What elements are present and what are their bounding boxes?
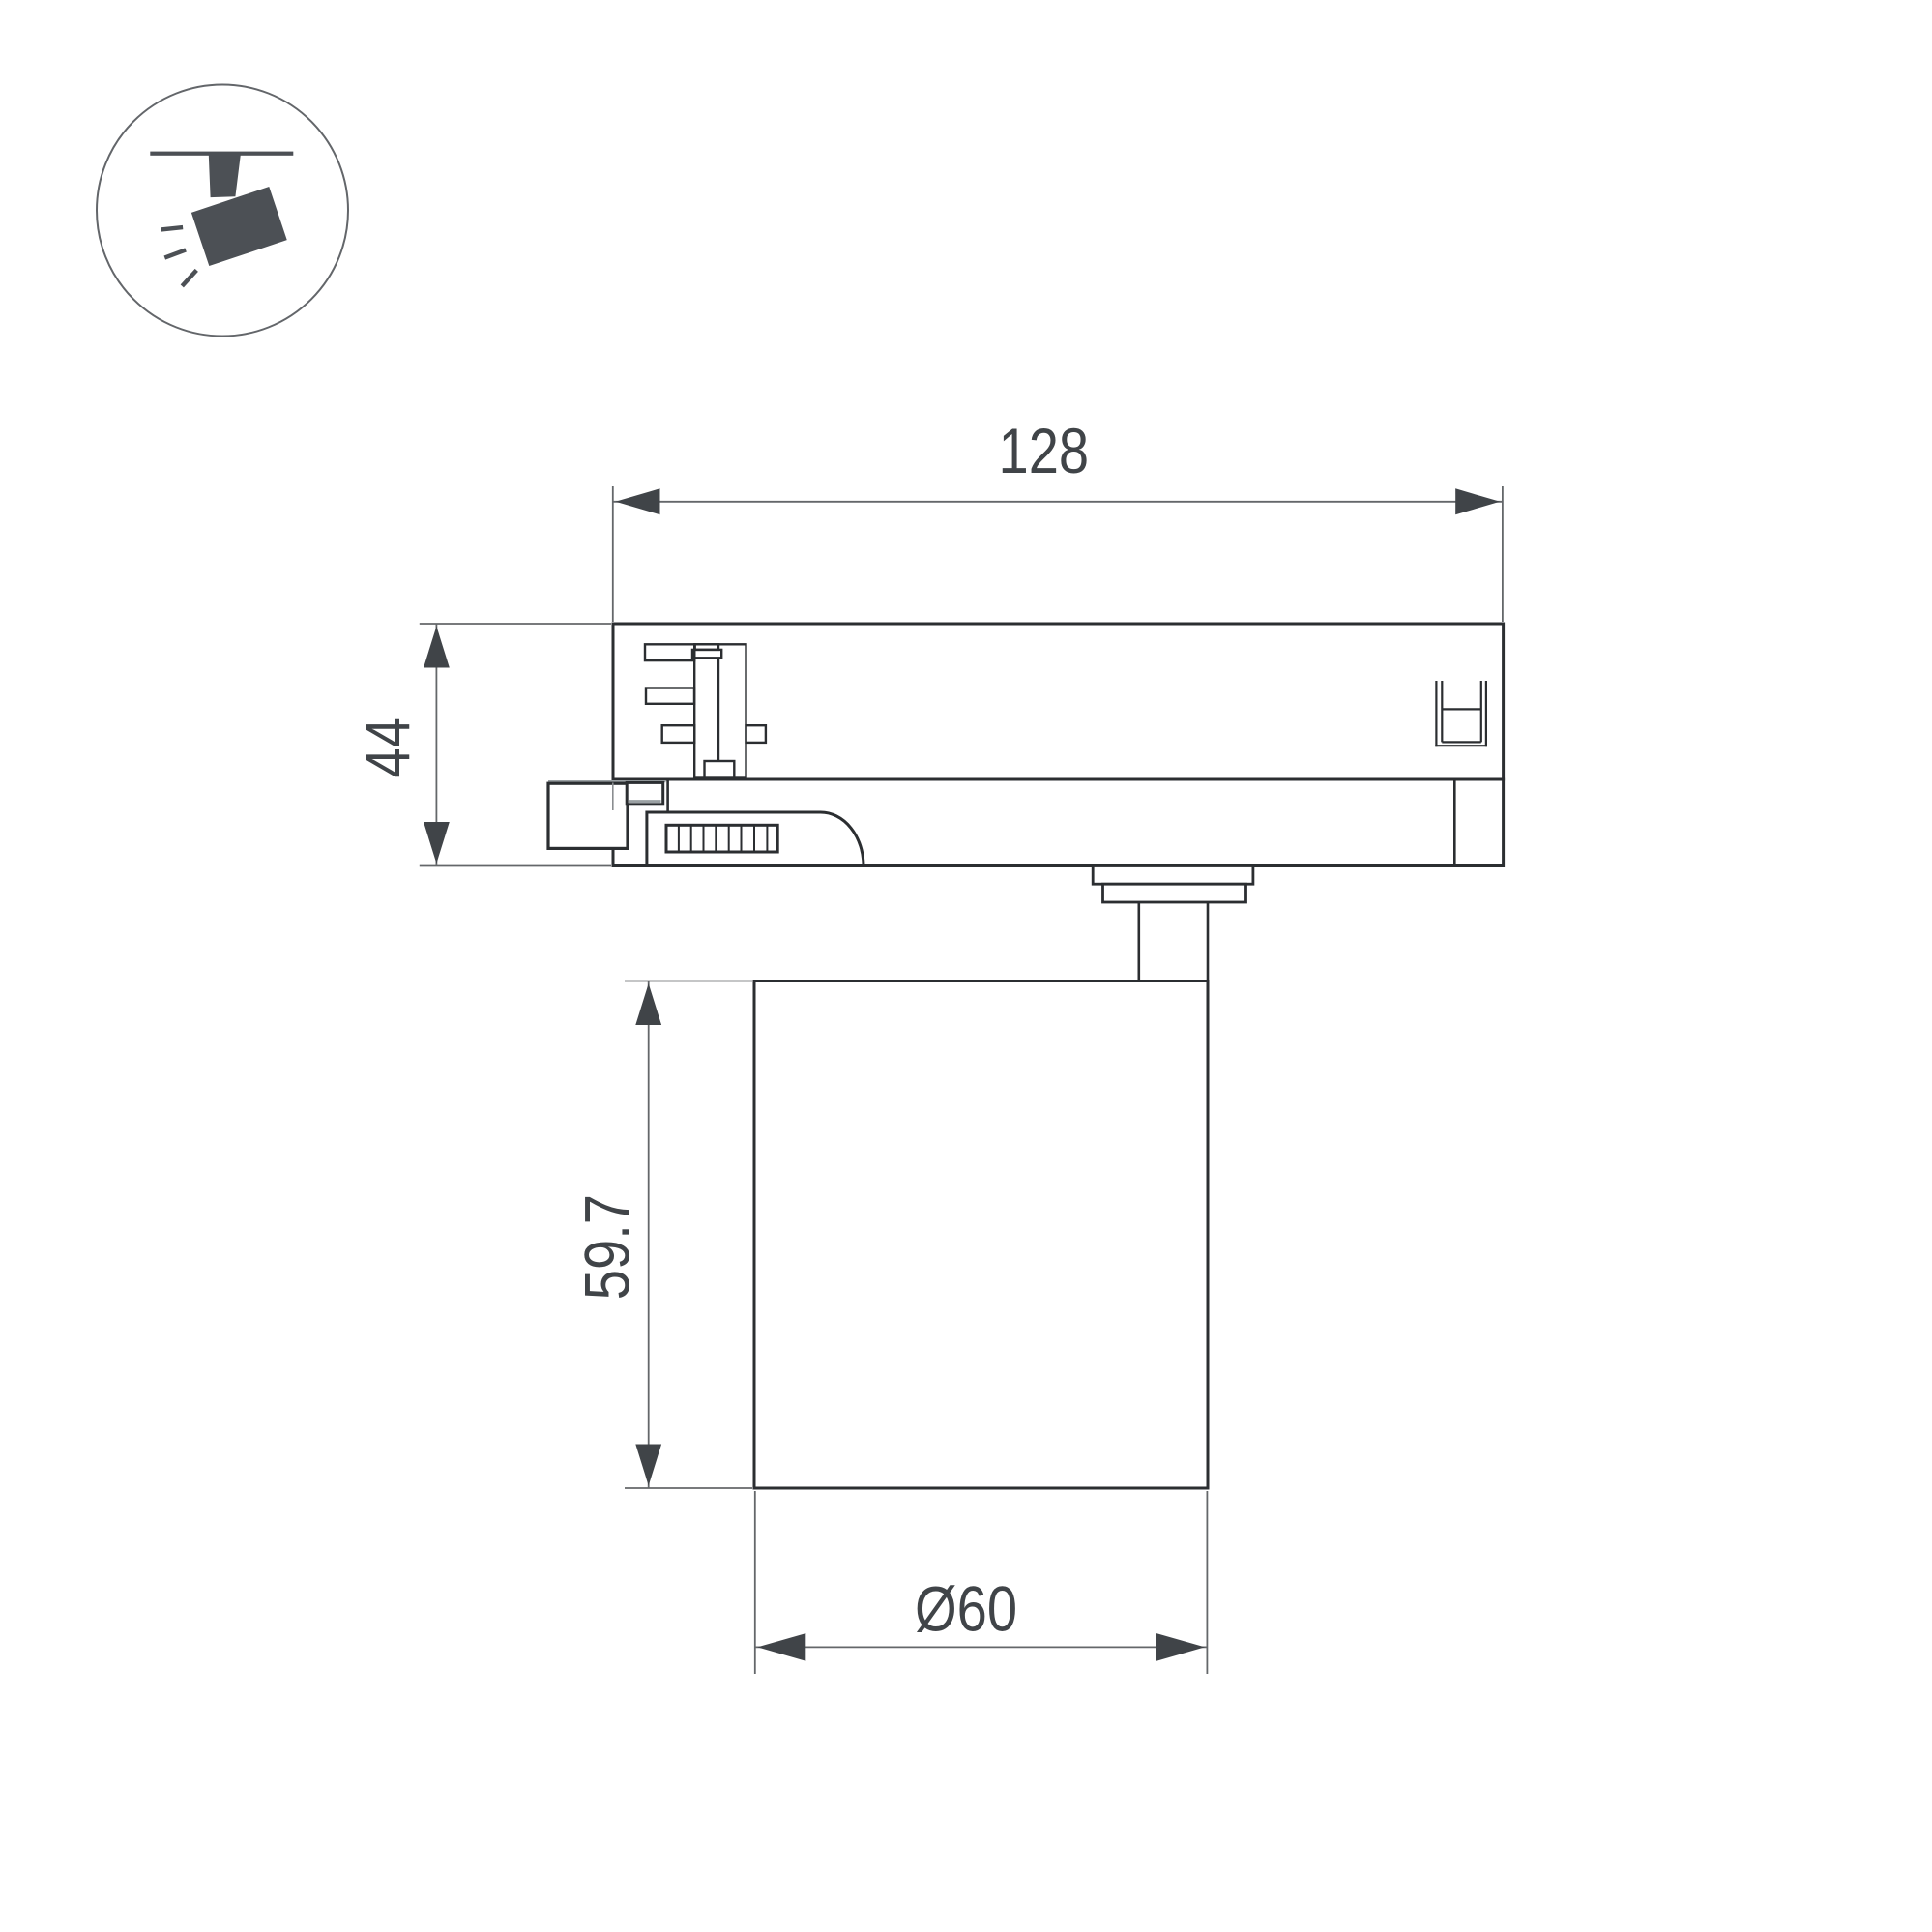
svg-text:128: 128: [998, 416, 1089, 486]
svg-text:44: 44: [352, 717, 423, 777]
svg-text:Ø60: Ø60: [915, 1573, 1017, 1644]
svg-text:59.7: 59.7: [571, 1194, 642, 1300]
